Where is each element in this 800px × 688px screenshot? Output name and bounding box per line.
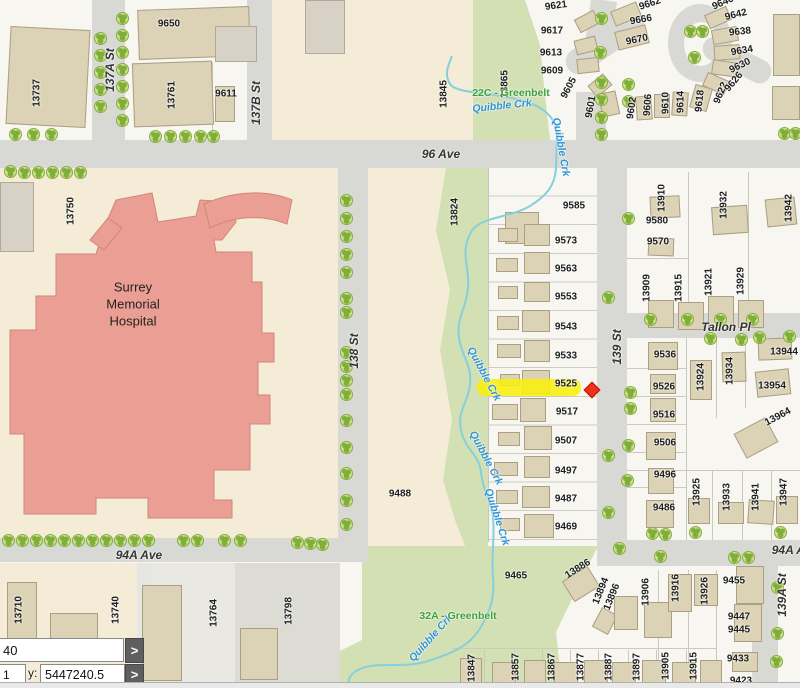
tree-icon — [696, 25, 709, 38]
lot-label-9516: 9516 — [653, 410, 675, 421]
lot-label-13954: 13954 — [758, 381, 786, 392]
tree-icon — [44, 534, 57, 547]
lot-label-13941: 13941 — [751, 483, 762, 511]
lot-label-13877: 13877 — [576, 653, 587, 681]
window-edge — [0, 682, 800, 688]
tree-icon — [728, 551, 741, 564]
lot-label-9525: 9525 — [555, 379, 577, 390]
tree-icon — [684, 25, 697, 38]
lot-label-13915: 13915 — [674, 274, 685, 302]
tree-icon — [116, 63, 129, 76]
tree-icon — [646, 527, 659, 540]
lot-label-9613: 9613 — [540, 48, 562, 59]
lot-label-13929: 13929 — [736, 267, 747, 295]
tree-icon — [191, 534, 204, 547]
greenbelt-label-22c---greenbelt: 22C - Greenbelt — [472, 87, 550, 99]
tree-icon — [116, 12, 129, 25]
tree-icon — [783, 330, 796, 343]
tree-icon — [142, 534, 155, 547]
lot-label-9488: 9488 — [389, 489, 411, 500]
lot-label-9487: 9487 — [555, 494, 577, 505]
tree-icon — [602, 291, 615, 304]
tree-icon — [74, 166, 87, 179]
coord-x-go-button[interactable]: > — [125, 638, 144, 663]
tree-icon — [689, 526, 702, 539]
tree-icon — [234, 534, 247, 547]
street-label-tallon-pl: Tallon Pl — [701, 320, 751, 334]
tree-icon — [594, 46, 607, 59]
lot-label-9570: 9570 — [647, 237, 669, 248]
tree-icon — [735, 333, 748, 346]
tree-icon — [624, 386, 637, 399]
tree-icon — [116, 29, 129, 42]
lot-label-13761: 13761 — [167, 81, 178, 109]
lot-label-9445: 9445 — [728, 625, 750, 636]
lot-label-9573: 9573 — [555, 236, 577, 247]
tree-icon — [94, 32, 107, 45]
lot-label-13845: 13845 — [439, 80, 450, 108]
coord-x-input[interactable] — [0, 638, 124, 662]
lot-label-9465: 9465 — [505, 571, 527, 582]
tree-icon — [164, 130, 177, 143]
tree-icon — [30, 534, 43, 547]
tree-icon — [774, 526, 787, 539]
tree-icon — [771, 627, 784, 640]
lot-label-9447: 9447 — [728, 612, 750, 623]
tree-icon — [72, 534, 85, 547]
tree-icon — [58, 534, 71, 547]
tree-icon — [622, 212, 635, 225]
tree-icon — [602, 506, 615, 519]
tree-icon — [177, 534, 190, 547]
lot-label-13910: 13910 — [657, 184, 668, 212]
tree-icon — [60, 166, 73, 179]
lot-label-13710: 13710 — [14, 596, 25, 624]
tree-icon — [595, 12, 608, 25]
tree-icon — [753, 331, 766, 344]
greenbelt-label-32a---greenbelt: 32A - Greenbelt — [419, 610, 496, 622]
tree-icon — [622, 439, 635, 452]
tree-icon — [128, 534, 141, 547]
lot-label-9517: 9517 — [556, 407, 578, 418]
map-canvas[interactable]: 9650137371376196111384513865962196179613… — [0, 0, 800, 688]
tree-icon — [46, 166, 59, 179]
lot-label-13897: 13897 — [632, 653, 643, 681]
lot-label-13737: 13737 — [32, 79, 43, 107]
coord-y-label: y: — [28, 666, 37, 680]
lot-label-9606: 9606 — [642, 94, 655, 117]
tree-icon — [688, 51, 701, 64]
lot-label-13847: 13847 — [467, 654, 478, 682]
lot-label-13887: 13887 — [604, 653, 615, 681]
tree-icon — [18, 166, 31, 179]
lot-label-13750: 13750 — [66, 197, 77, 225]
lot-label-9506: 9506 — [654, 438, 676, 449]
tree-icon — [94, 100, 107, 113]
lot-label-13824: 13824 — [450, 198, 461, 226]
tree-icon — [4, 165, 17, 178]
tree-icon — [340, 388, 353, 401]
tree-icon — [2, 534, 15, 547]
tree-icon — [340, 212, 353, 225]
tree-icon — [100, 534, 113, 547]
lot-label-9533: 9533 — [555, 351, 577, 362]
tree-icon — [613, 542, 626, 555]
lot-label-9507: 9507 — [555, 436, 577, 447]
lot-label-13933: 13933 — [722, 483, 733, 511]
tree-icon — [218, 534, 231, 547]
tree-icon — [340, 248, 353, 261]
lot-label-13916: 13916 — [671, 574, 682, 602]
lot-label-13798: 13798 — [284, 597, 295, 625]
tree-icon — [340, 194, 353, 207]
tree-icon — [194, 130, 207, 143]
street-label-94a-ave: 94A Ave — [772, 543, 800, 557]
tree-icon — [595, 128, 608, 141]
tree-icon — [340, 292, 353, 305]
tree-icon — [622, 78, 635, 91]
lot-label-13921: 13921 — [704, 268, 715, 296]
tree-icon — [340, 494, 353, 507]
lot-label-9611: 9611 — [215, 89, 237, 100]
tree-icon — [624, 402, 637, 415]
lot-label-9609: 9609 — [541, 66, 563, 77]
lot-label-9650: 9650 — [158, 19, 180, 30]
tree-icon — [340, 306, 353, 319]
lot-label-13925: 13925 — [692, 478, 703, 506]
tree-icon — [27, 128, 40, 141]
tree-icon — [114, 534, 127, 547]
lot-label-9580: 9580 — [646, 216, 668, 227]
lot-label-13764: 13764 — [209, 599, 220, 627]
tree-icon — [9, 128, 22, 141]
tree-icon — [116, 80, 129, 93]
street-label-94a-ave: 94A Ave — [116, 548, 162, 562]
tree-icon — [207, 130, 220, 143]
tree-icon — [340, 518, 353, 531]
tree-icon — [602, 449, 615, 462]
lot-label-9486: 9486 — [653, 503, 675, 514]
lot-label-9553: 9553 — [555, 292, 577, 303]
tree-icon — [116, 114, 129, 127]
lot-label-13740: 13740 — [111, 596, 122, 624]
tree-icon — [770, 655, 783, 668]
tree-icon — [179, 130, 192, 143]
lot-label-13924: 13924 — [696, 363, 707, 391]
lot-label-9638: 9638 — [728, 25, 751, 38]
lot-label-13905: 13905 — [661, 652, 672, 680]
tree-icon — [742, 551, 755, 564]
lot-label-9617: 9617 — [541, 26, 563, 37]
lot-label-9563: 9563 — [555, 264, 577, 275]
tree-icon — [654, 550, 667, 563]
tree-icon — [340, 414, 353, 427]
tree-icon — [340, 441, 353, 454]
lot-label-13942: 13942 — [784, 194, 795, 222]
tree-icon — [340, 230, 353, 243]
lot-label-9543: 9543 — [555, 322, 577, 333]
tree-icon — [789, 127, 800, 140]
tree-icon — [340, 266, 353, 279]
street-label-96-ave: 96 Ave — [422, 147, 460, 161]
street-label-137b-st: 137B St — [249, 81, 263, 125]
lot-label-9455: 9455 — [723, 576, 745, 587]
tree-icon — [32, 166, 45, 179]
tree-icon — [659, 528, 672, 541]
lot-label-9497: 9497 — [555, 466, 577, 477]
tree-icon — [291, 536, 304, 549]
lot-label-13915: 13915 — [689, 652, 700, 680]
tree-icon — [340, 467, 353, 480]
tree-icon — [304, 537, 317, 550]
tree-icon — [149, 130, 162, 143]
tree-icon — [595, 76, 608, 89]
lot-label-13947: 13947 — [779, 478, 790, 506]
tree-icon — [116, 97, 129, 110]
tree-icon — [316, 538, 329, 551]
lot-label-13926: 13926 — [700, 577, 711, 605]
lot-label-13857: 13857 — [511, 653, 522, 681]
tree-icon — [16, 534, 29, 547]
tree-icon — [681, 313, 694, 326]
tree-icon — [621, 474, 634, 487]
lot-label-13867: 13867 — [547, 653, 558, 681]
lot-label-13934: 13934 — [725, 357, 736, 385]
lot-label-9433: 9433 — [727, 654, 749, 665]
lot-label-13906: 13906 — [641, 578, 652, 606]
tree-icon — [116, 46, 129, 59]
lot-label-9536: 9536 — [654, 350, 676, 361]
tree-icon — [644, 313, 657, 326]
street-label-137a-st: 137A St — [103, 48, 117, 92]
lot-label-13909: 13909 — [642, 274, 653, 302]
lot-label-9614: 9614 — [676, 91, 687, 113]
lot-label-9526: 9526 — [653, 382, 675, 393]
lot-label-9585: 9585 — [563, 201, 585, 212]
street-label-139a-st: 139A St — [775, 573, 789, 617]
lot-label-13932: 13932 — [719, 191, 730, 219]
lot-label-13944: 13944 — [770, 347, 798, 358]
lot-label-9496: 9496 — [654, 470, 676, 481]
lot-label-9469: 9469 — [555, 522, 577, 533]
lot-label-9618: 9618 — [693, 89, 706, 112]
street-label-139-st: 139 St — [610, 329, 624, 364]
tree-icon — [595, 111, 608, 124]
tree-icon — [340, 374, 353, 387]
tree-icon — [86, 534, 99, 547]
hospital-label: SurreyMemorialHospital — [106, 280, 159, 331]
tree-icon — [45, 128, 58, 141]
street-label-138-st: 138 St — [347, 333, 361, 368]
lot-label-9610: 9610 — [661, 92, 672, 114]
